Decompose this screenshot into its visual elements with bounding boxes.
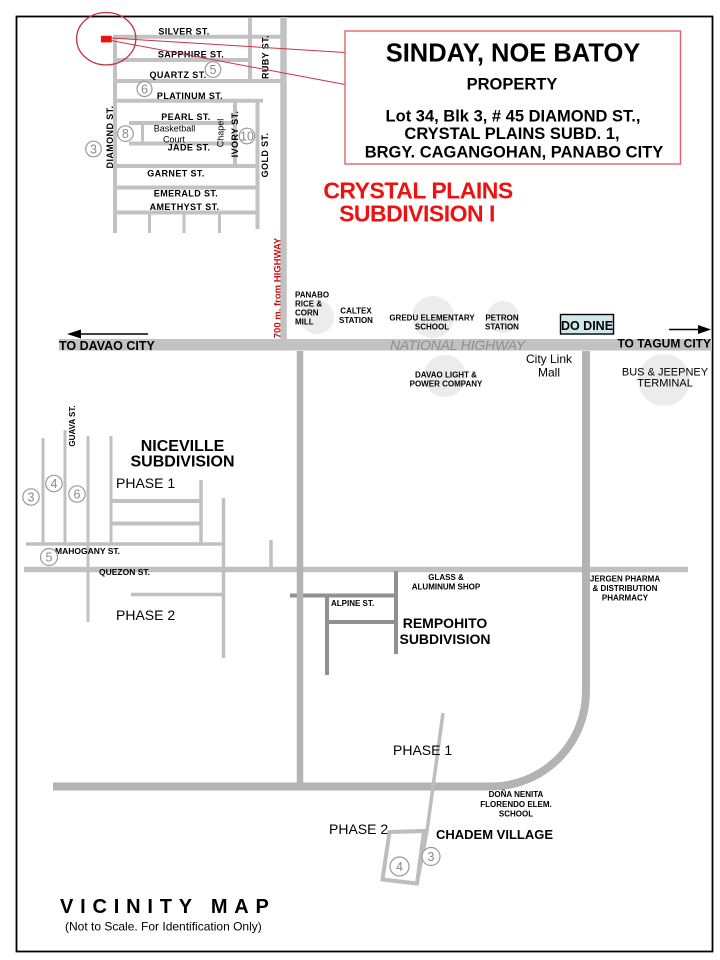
svg-text:PHASE 2: PHASE 2 bbox=[116, 607, 175, 623]
svg-text:SCHOOL: SCHOOL bbox=[499, 810, 533, 819]
svg-text:STATION: STATION bbox=[339, 316, 373, 325]
svg-text:SILVER ST.: SILVER ST. bbox=[158, 27, 209, 37]
svg-text:CORN: CORN bbox=[295, 309, 319, 318]
svg-text:(Not to Scale. For Identificat: (Not to Scale. For Identification Only) bbox=[65, 920, 262, 934]
svg-text:PEARL ST.: PEARL ST. bbox=[161, 112, 210, 122]
svg-text:MILL: MILL bbox=[295, 318, 314, 327]
svg-text:700 m. from HIGHWAY: 700 m. from HIGHWAY bbox=[273, 237, 284, 338]
svg-text:RUBY ST.: RUBY ST. bbox=[261, 35, 271, 79]
svg-text:PROPERTY: PROPERTY bbox=[467, 76, 558, 94]
svg-text:POWER COMPANY: POWER COMPANY bbox=[410, 380, 483, 389]
svg-text:8: 8 bbox=[122, 127, 129, 141]
svg-text:NATIONAL HIGHWAY: NATIONAL HIGHWAY bbox=[390, 337, 527, 353]
svg-text:4: 4 bbox=[396, 860, 403, 874]
svg-text:3: 3 bbox=[428, 850, 435, 864]
svg-text:SUBDIVISION I: SUBDIVISION I bbox=[339, 201, 495, 227]
svg-text:& DISTRIBUTION: & DISTRIBUTION bbox=[593, 584, 658, 593]
svg-text:6: 6 bbox=[141, 83, 148, 97]
svg-text:FLORENDO ELEM.: FLORENDO ELEM. bbox=[480, 800, 552, 809]
svg-text:TERMINAL: TERMINAL bbox=[637, 378, 693, 390]
svg-text:GOLD ST.: GOLD ST. bbox=[260, 133, 270, 178]
svg-text:MAHOGANY ST.: MAHOGANY ST. bbox=[55, 546, 120, 556]
svg-text:SUBDIVISION: SUBDIVISION bbox=[130, 454, 234, 471]
svg-text:Chapel: Chapel bbox=[216, 119, 226, 148]
svg-text:EMERALD ST.: EMERALD ST. bbox=[154, 189, 218, 199]
svg-text:GREDU ELEMENTARY: GREDU ELEMENTARY bbox=[389, 314, 475, 323]
svg-text:TO DAVAO CITY: TO DAVAO CITY bbox=[59, 339, 156, 353]
svg-text:BRGY. CAGANGOHAN, PANABO CITY: BRGY. CAGANGOHAN, PANABO CITY bbox=[365, 144, 664, 162]
svg-text:IVORY ST.: IVORY ST. bbox=[230, 111, 240, 158]
svg-text:PHASE 1: PHASE 1 bbox=[393, 742, 452, 758]
svg-text:JERGEN PHARMA: JERGEN PHARMA bbox=[590, 575, 660, 584]
svg-text:SCHOOL: SCHOOL bbox=[415, 323, 449, 332]
svg-text:PHASE 1: PHASE 1 bbox=[116, 475, 175, 491]
svg-text:PHARMACY: PHARMACY bbox=[602, 594, 649, 603]
svg-text:VICINITY MAP: VICINITY MAP bbox=[60, 896, 276, 918]
svg-text:ALUMINUM SHOP: ALUMINUM SHOP bbox=[412, 583, 481, 592]
svg-text:Basketball: Basketball bbox=[154, 124, 196, 134]
svg-text:Lot 34, Blk 3, # 45 DIAMOND ST: Lot 34, Blk 3, # 45 DIAMOND ST., bbox=[386, 108, 641, 126]
svg-text:REMPOHITO: REMPOHITO bbox=[403, 615, 488, 631]
svg-text:3: 3 bbox=[90, 143, 97, 157]
svg-text:5: 5 bbox=[46, 551, 53, 565]
svg-text:Mall: Mall bbox=[538, 366, 560, 380]
svg-text:SINDAY, NOE BATOY: SINDAY, NOE BATOY bbox=[386, 40, 641, 68]
svg-text:4: 4 bbox=[51, 477, 58, 491]
svg-text:AMETHYST ST.: AMETHYST ST. bbox=[150, 202, 220, 212]
svg-text:6: 6 bbox=[74, 488, 81, 502]
svg-text:GARNET ST.: GARNET ST. bbox=[147, 169, 205, 179]
svg-text:DOÑA NENITA: DOÑA NENITA bbox=[489, 790, 544, 799]
svg-text:3: 3 bbox=[28, 491, 35, 505]
svg-text:5: 5 bbox=[210, 63, 217, 77]
svg-text:QUARTZ ST.: QUARTZ ST. bbox=[150, 70, 207, 80]
svg-text:CALTEX: CALTEX bbox=[340, 307, 372, 316]
svg-text:GUAVA ST.: GUAVA ST. bbox=[68, 405, 77, 446]
svg-text:DIAMOND ST.: DIAMOND ST. bbox=[105, 106, 115, 169]
svg-text:GLASS &: GLASS & bbox=[428, 573, 464, 582]
svg-text:ALPINE ST.: ALPINE ST. bbox=[331, 599, 374, 608]
svg-text:SUBDIVISION: SUBDIVISION bbox=[399, 631, 490, 647]
svg-text:City Link: City Link bbox=[526, 352, 573, 366]
svg-text:PLATINUM ST.: PLATINUM ST. bbox=[157, 91, 223, 101]
svg-text:QUEZON ST.: QUEZON ST. bbox=[99, 567, 150, 577]
svg-text:NICEVILLE: NICEVILLE bbox=[141, 438, 225, 455]
svg-text:RICE &: RICE & bbox=[295, 300, 322, 309]
svg-text:DO DINE: DO DINE bbox=[561, 319, 613, 333]
svg-text:10: 10 bbox=[240, 130, 254, 144]
svg-text:PETRON: PETRON bbox=[485, 314, 519, 323]
svg-text:STATION: STATION bbox=[485, 323, 519, 332]
svg-text:CHADEM VILLAGE: CHADEM VILLAGE bbox=[436, 827, 553, 842]
svg-text:CRYSTAL PLAINS SUBD. 1,: CRYSTAL PLAINS SUBD. 1, bbox=[404, 125, 619, 143]
svg-text:PHASE 2: PHASE 2 bbox=[329, 821, 388, 837]
svg-text:TO TAGUM CITY: TO TAGUM CITY bbox=[617, 337, 711, 351]
svg-text:DAVAO LIGHT &: DAVAO LIGHT & bbox=[415, 371, 477, 380]
svg-text:JADE ST.: JADE ST. bbox=[168, 143, 211, 153]
svg-text:PANABO: PANABO bbox=[295, 291, 329, 300]
